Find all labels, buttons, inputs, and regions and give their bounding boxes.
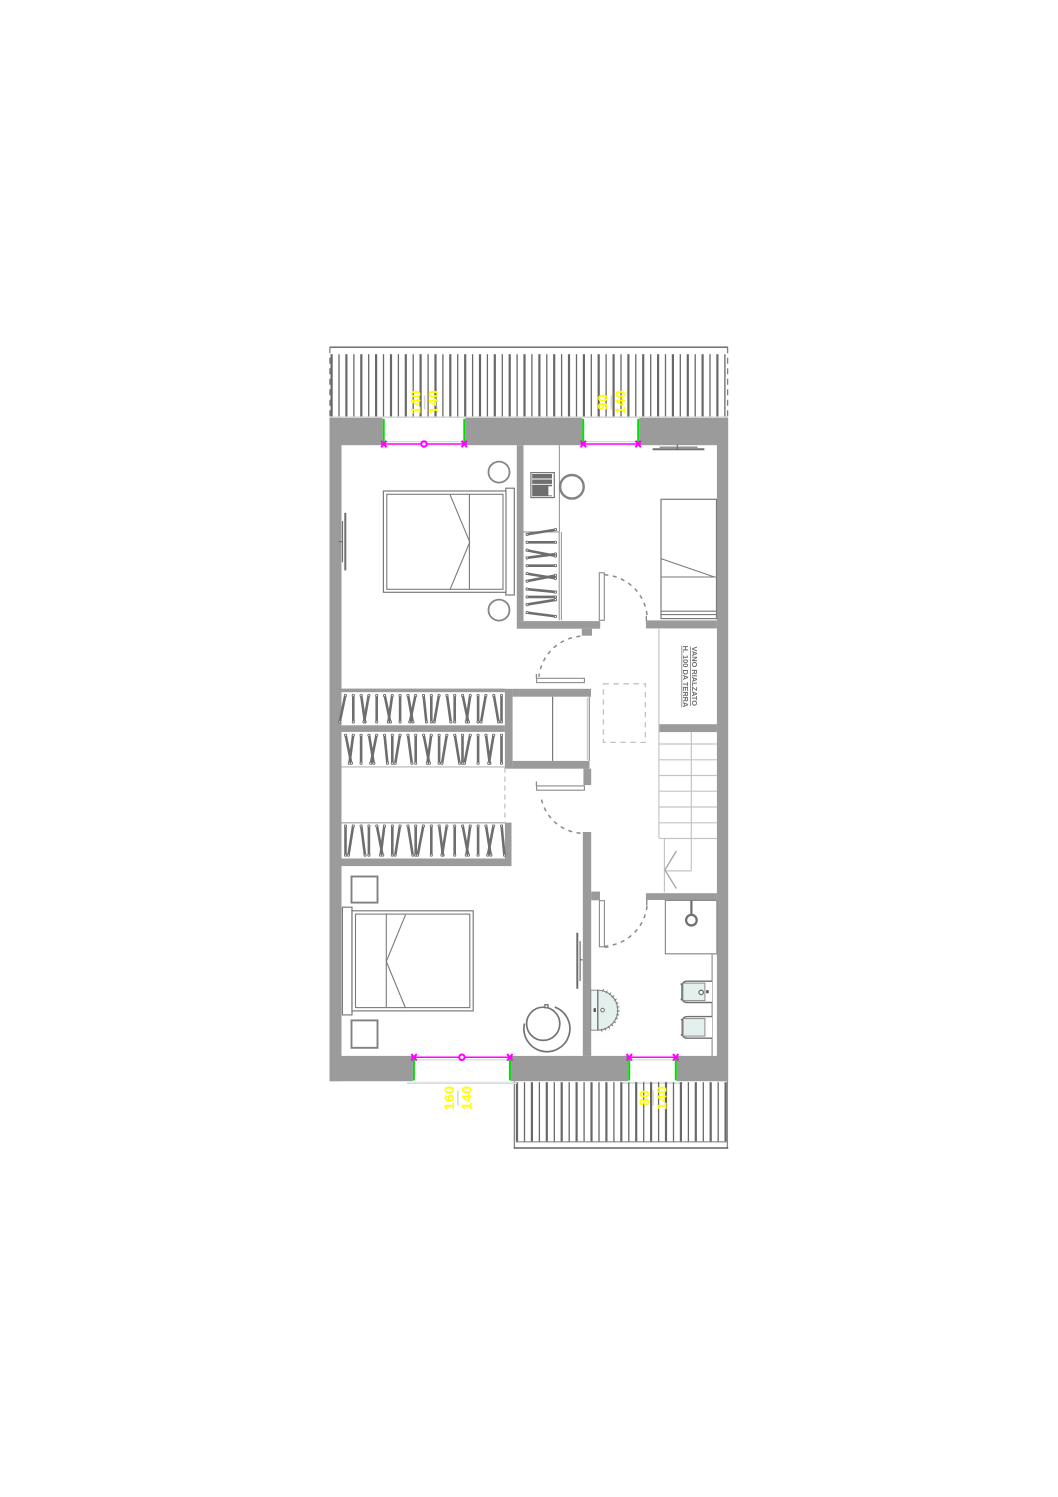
svg-text:140: 140 [458,1086,474,1110]
svg-text:H. 100 DA TERRA: H. 100 DA TERRA [681,646,690,708]
svg-text:140: 140 [612,390,628,414]
svg-text:80: 80 [636,1090,652,1106]
svg-text:140: 140 [654,1086,670,1110]
svg-text:160: 160 [441,1086,457,1110]
svg-text:140: 140 [408,390,424,414]
svg-text:90: 90 [594,394,610,410]
svg-text:140: 140 [425,390,441,414]
